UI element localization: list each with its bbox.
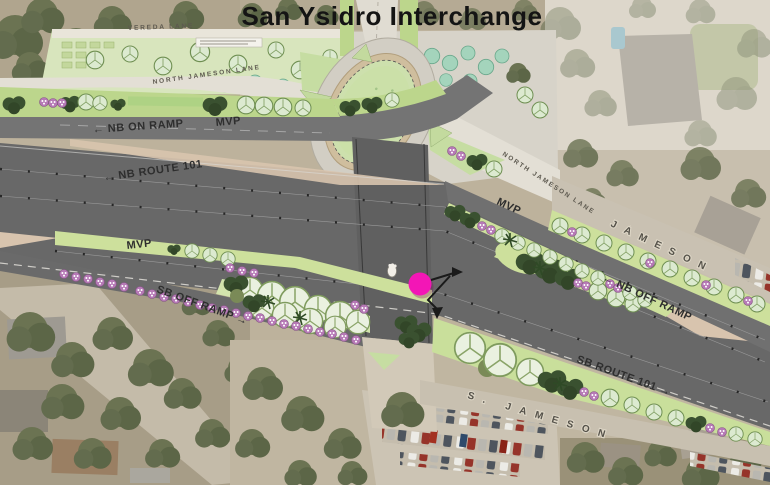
aerial-house-top-right [541, 0, 770, 162]
plan-canvas: VEREDA LANE NORTH JAMESON LANE ← NB ON R… [0, 0, 770, 485]
page-title: San Ysidro Interchange [242, 1, 543, 32]
interchange-plan-map: VEREDA LANE NORTH JAMESON LANE ← NB ON R… [0, 0, 770, 485]
small-callout-box [196, 38, 262, 47]
hand-cursor-icon [388, 263, 397, 277]
marker-dot[interactable] [409, 273, 432, 296]
label-mvp-north: MVP [215, 115, 241, 129]
